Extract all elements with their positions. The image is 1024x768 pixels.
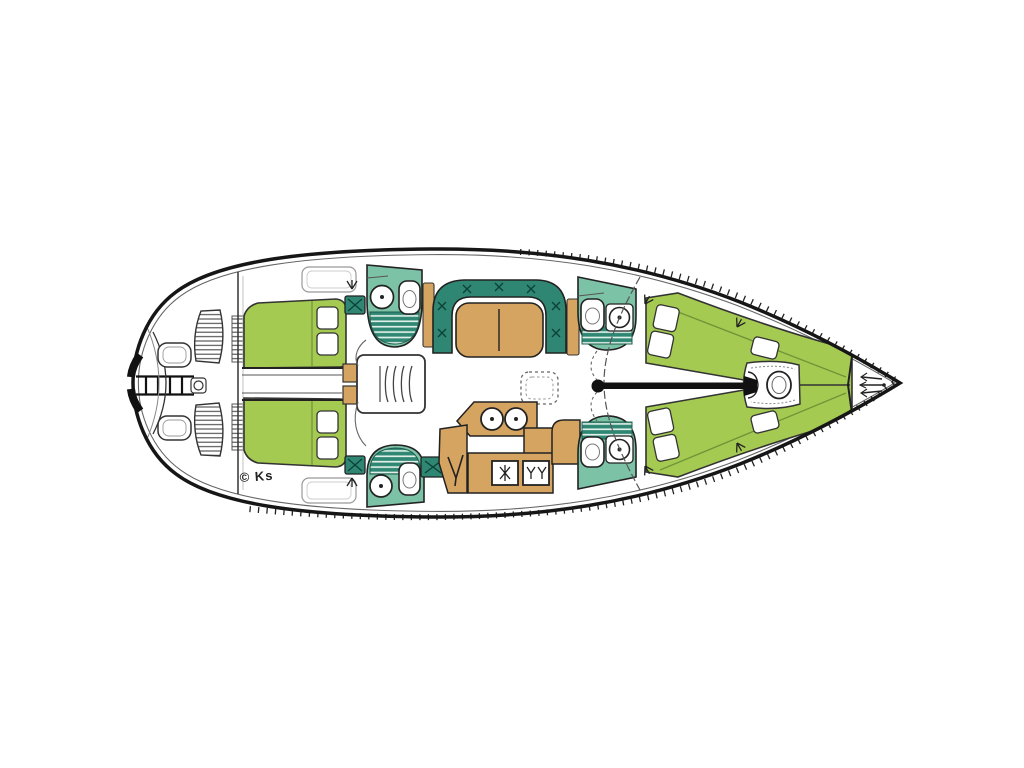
pillow xyxy=(317,411,338,433)
aft-head-top xyxy=(367,265,422,347)
cockpit-bench-top xyxy=(195,310,223,363)
toilet xyxy=(399,281,420,314)
pillow xyxy=(317,437,338,459)
mast-beam xyxy=(603,383,744,390)
forward-head-bottom xyxy=(578,416,636,489)
nav-desk xyxy=(552,420,580,464)
cockpit-bench-bottom xyxy=(195,403,223,456)
stove xyxy=(523,461,549,485)
aft-head-bottom xyxy=(367,445,424,507)
toilet xyxy=(581,437,604,467)
mast xyxy=(592,380,605,393)
aft-cabin-berth-top xyxy=(244,299,346,368)
step-block xyxy=(343,364,358,382)
pillow xyxy=(317,333,338,355)
deck-plan-figure: © Ks xyxy=(0,0,1024,768)
yacht-deck-plan-page: © Ks xyxy=(0,0,1024,768)
aft-cabin-berth-bottom xyxy=(244,398,346,467)
seat-cube xyxy=(345,296,365,314)
salon-table xyxy=(456,303,543,357)
companionway-steps xyxy=(357,355,425,413)
watermark-text: © Ks xyxy=(239,468,274,485)
bow-toilet xyxy=(767,372,791,399)
galley-counter xyxy=(524,428,553,456)
seat-cube xyxy=(345,456,365,474)
pillow xyxy=(317,307,338,329)
toilet xyxy=(581,299,604,331)
forward-head-top xyxy=(578,277,636,350)
toilet xyxy=(399,463,420,495)
stove xyxy=(492,461,518,485)
helm-pedestal xyxy=(191,378,206,393)
stern-seat-top xyxy=(158,343,191,367)
step-block xyxy=(343,386,358,404)
stern-seat-bottom xyxy=(158,416,191,440)
